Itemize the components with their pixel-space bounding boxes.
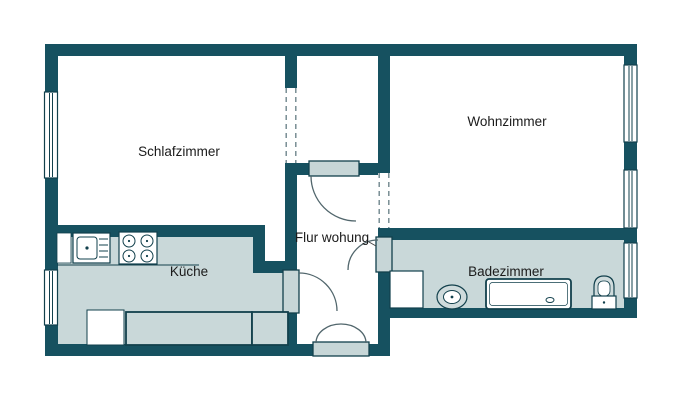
floor-plan: Schlafzimmer Wohnzimmer Küche Flur wohun…: [0, 0, 681, 400]
doors: [283, 161, 392, 356]
toilet: [592, 276, 616, 309]
kitchen-counter: [126, 312, 252, 345]
wall-top: [45, 44, 637, 56]
label-wohnzimmer: Wohnzimmer: [467, 114, 547, 129]
door-kitchen: [283, 270, 337, 313]
label-schlafzimmer: Schlafzimmer: [138, 144, 220, 159]
window-kitchen-left: [45, 270, 58, 325]
dishwasher-unit: [57, 233, 71, 263]
door-entrance-double: [313, 324, 369, 356]
washing-machine: [390, 271, 423, 308]
window-wohnzimmer-right-2: [624, 170, 637, 228]
floor-plan-canvas: Schlafzimmer Wohnzimmer Küche Flur wohun…: [0, 0, 681, 400]
window-schlafzimmer-left: [45, 92, 58, 178]
label-kueche: Küche: [170, 264, 208, 279]
label-badezimmer: Badezimmer: [468, 264, 544, 279]
bathtub: [486, 279, 571, 309]
bathroom-sink: [437, 285, 467, 309]
kitchen-stove: [119, 232, 157, 264]
kitchen-counter-small: [252, 312, 288, 345]
kitchen-sink: [73, 233, 110, 263]
window-bathroom-right: [624, 243, 637, 298]
wall-wohnzimmer-left: [378, 56, 390, 173]
door-corridor: [309, 161, 359, 221]
window-wohnzimmer-right-1: [624, 65, 637, 142]
label-flur: Flur wohung: [295, 230, 369, 245]
dashed-walls: [285, 88, 390, 228]
flur-leader-line: [369, 242, 376, 246]
refrigerator: [87, 310, 124, 345]
schlafzimmer-niche: [265, 225, 285, 261]
wall-bath-top: [378, 228, 637, 240]
